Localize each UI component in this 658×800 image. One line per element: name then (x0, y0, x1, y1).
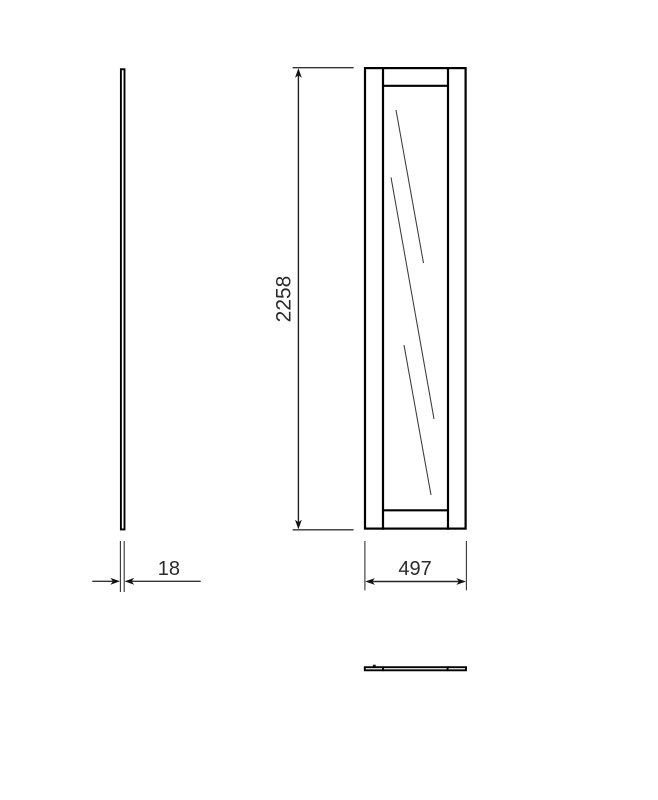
svg-text:497: 497 (398, 558, 431, 580)
svg-text:2258: 2258 (273, 276, 296, 323)
svg-text:18: 18 (158, 558, 180, 580)
